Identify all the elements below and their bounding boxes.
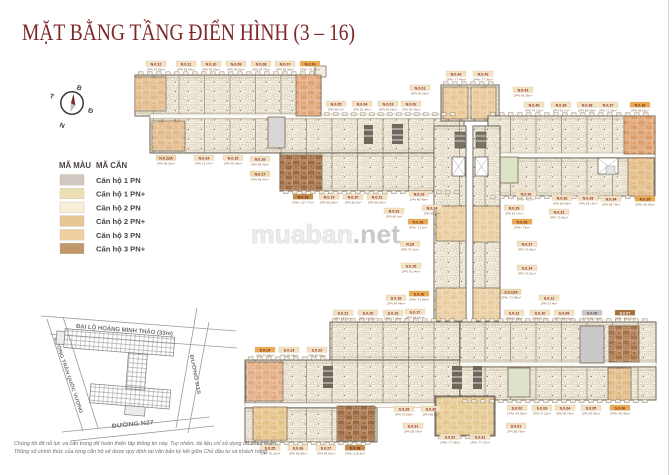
svg-text:S.0.12: S.0.12 xyxy=(509,311,520,315)
svg-text:S.0.29: S.0.29 xyxy=(399,407,410,411)
svg-text:2PN 60.3m²: 2PN 60.3m² xyxy=(386,215,403,219)
svg-text:N.0.11: N.0.11 xyxy=(181,62,192,66)
svg-text:S.0.19: S.0.19 xyxy=(388,311,399,315)
svg-text:N.0.12: N.0.12 xyxy=(151,62,162,66)
svg-text:2PN 70.21m²: 2PN 70.21m² xyxy=(518,272,536,276)
svg-text:2PN 64.44m²: 2PN 64.44m² xyxy=(387,302,405,306)
svg-text:2PN 59.43m²: 2PN 59.43m² xyxy=(202,68,220,72)
svg-text:N.0.03: N.0.03 xyxy=(383,102,394,106)
svg-text:2PN 74.13m²: 2PN 74.13m² xyxy=(525,109,543,113)
svg-text:S.0.20: S.0.20 xyxy=(363,311,374,315)
svg-text:2PN 58.7m²: 2PN 58.7m² xyxy=(328,108,345,112)
svg-text:N.0.26: N.0.26 xyxy=(305,62,316,66)
svg-text:S.0.22: S.0.22 xyxy=(312,348,323,352)
svg-text:1PN 45.49m²: 1PN 45.49m² xyxy=(410,198,428,202)
svg-text:S.0.18: S.0.18 xyxy=(391,296,402,300)
svg-text:2PN+ 73.1m²: 2PN+ 73.1m² xyxy=(409,226,427,230)
svg-text:N.0.20: N.0.20 xyxy=(348,195,359,199)
svg-text:N.0.19: N.0.19 xyxy=(324,195,335,199)
svg-text:2PN 59.34m²: 2PN 59.34m² xyxy=(353,108,371,112)
svg-text:N.0.40: N.0.40 xyxy=(529,103,540,107)
svg-text:2PN+ 79.33m²: 2PN+ 79.33m² xyxy=(300,68,320,72)
svg-text:S.0.09: S.0.09 xyxy=(559,311,570,315)
svg-text:2PN 69.92m²: 2PN 69.92m² xyxy=(582,412,600,416)
svg-text:2PN 59.34m²: 2PN 59.34m² xyxy=(177,68,195,72)
svg-text:N.0.04: N.0.04 xyxy=(357,102,369,106)
svg-text:S.0.01: S.0.01 xyxy=(511,424,522,428)
svg-text:S.0.23: S.0.23 xyxy=(284,348,295,352)
svg-text:1PN+ 45.7m²: 1PN+ 45.7m² xyxy=(517,198,535,202)
svg-text:2PN+ 127.77m²: 2PN+ 127.77m² xyxy=(292,201,314,205)
svg-text:muaban.net: muaban.net xyxy=(251,219,400,249)
svg-text:2PN+ 77.36m²: 2PN+ 77.36m² xyxy=(473,78,493,82)
svg-text:N.0.09: N.0.09 xyxy=(231,62,242,66)
svg-text:2PN 70.22m²: 2PN 70.22m² xyxy=(533,412,551,416)
svg-text:N.0.08: N.0.08 xyxy=(256,62,267,66)
svg-text:2PN 59.44m²: 2PN 59.44m² xyxy=(280,354,298,358)
svg-text:N.0.33: N.0.33 xyxy=(583,196,594,200)
svg-text:1PN 48.76m²: 1PN 48.76m² xyxy=(583,317,601,321)
svg-text:2PN 69.15m²: 2PN 69.15m² xyxy=(579,202,597,206)
svg-text:S.0.24: S.0.24 xyxy=(260,348,272,352)
svg-text:2PN 59.76m²: 2PN 59.76m² xyxy=(402,108,420,112)
svg-text:2PN 66.76m²: 2PN 66.76m² xyxy=(556,412,574,416)
svg-text:S.0.27: S.0.27 xyxy=(321,446,332,450)
svg-text:2PN 59.89m²: 2PN 59.89m² xyxy=(289,452,307,456)
svg-text:2PN 72.17m²: 2PN 72.17m² xyxy=(195,162,213,166)
svg-text:2PN 72.47m²: 2PN 72.47m² xyxy=(384,317,402,321)
svg-text:2PN 60.31m²: 2PN 60.31m² xyxy=(157,162,175,166)
svg-text:2PN 62.17m²: 2PN 62.17m² xyxy=(505,212,523,216)
svg-text:2PN 69.66m²: 2PN 69.66m² xyxy=(578,109,596,113)
svg-text:N.0.16: N.0.16 xyxy=(255,157,266,161)
svg-text:2PN 69.38m²: 2PN 69.38m² xyxy=(514,94,532,98)
svg-text:2PN+ 77.46m²: 2PN+ 77.46m² xyxy=(440,441,460,445)
svg-text:MÃ MÀU: MÃ MÀU xyxy=(59,161,91,170)
svg-text:2PN+ 86.23m²: 2PN+ 86.23m² xyxy=(615,317,635,321)
svg-text:N.0.38: N.0.38 xyxy=(582,103,593,107)
svg-text:2PN 60.66m²: 2PN 60.66m² xyxy=(505,317,523,321)
svg-text:N.0.39: N.0.39 xyxy=(556,103,567,107)
svg-text:N.0.37: N.0.37 xyxy=(603,103,614,107)
svg-text:2PN 69.91m²: 2PN 69.91m² xyxy=(317,452,335,456)
svg-text:S.0.06: S.0.06 xyxy=(615,406,626,410)
svg-text:2PN+ 77.46m²: 2PN+ 77.46m² xyxy=(446,78,466,82)
svg-text:2PN 69.42m²: 2PN 69.42m² xyxy=(251,163,269,167)
svg-text:N.0.27: N.0.27 xyxy=(522,242,533,246)
svg-text:2PN 49.26m²: 2PN 49.26m² xyxy=(379,108,397,112)
svg-text:N.0.12A: N.0.12A xyxy=(159,156,173,160)
svg-text:2PN 68.93m²: 2PN 68.93m² xyxy=(553,202,571,206)
svg-text:N.0.07: N.0.07 xyxy=(280,62,291,66)
svg-text:S.0.31: S.0.31 xyxy=(408,424,419,428)
svg-text:N.0.23: N.0.23 xyxy=(414,192,425,196)
svg-text:2PN 58.5m²: 2PN 58.5m² xyxy=(423,413,440,417)
svg-text:N.0.26: N.0.26 xyxy=(413,220,424,224)
svg-text:2PN 70.59m²: 2PN 70.59m² xyxy=(395,413,413,417)
svg-text:2PN 69.62m²: 2PN 69.62m² xyxy=(631,109,649,113)
svg-text:S.0.28: S.0.28 xyxy=(350,446,361,450)
svg-text:2PN 60.05m²: 2PN 60.05m² xyxy=(368,201,386,205)
svg-text:2PN 71.36m²: 2PN 71.36m² xyxy=(599,109,617,113)
svg-text:S.0.02: S.0.02 xyxy=(512,406,523,410)
svg-text:2PN 63.72m²: 2PN 63.72m² xyxy=(359,317,377,321)
svg-text:N.0.36: N.0.36 xyxy=(635,103,646,107)
svg-text:N.0.18: N.0.18 xyxy=(298,195,309,199)
svg-text:S.0.07: S.0.07 xyxy=(620,311,631,315)
svg-text:2PN 59.43m²: 2PN 59.43m² xyxy=(227,68,245,72)
svg-text:2PN 58.75m²: 2PN 58.75m² xyxy=(507,430,525,434)
svg-text:1PN 46.27m²: 1PN 46.27m² xyxy=(251,178,269,182)
svg-text:S.0.12A: S.0.12A xyxy=(504,290,518,294)
svg-text:2PN+ 77.37m²: 2PN+ 77.37m² xyxy=(470,441,490,445)
svg-text:Thông số chính thức của từng c: Thông số chính thức của từng căn hộ sẽ đ… xyxy=(14,448,268,455)
svg-text:2PN 69.45m²: 2PN 69.45m² xyxy=(555,317,573,321)
svg-text:Căn hộ 1 PN+: Căn hộ 1 PN+ xyxy=(96,190,146,199)
svg-text:N.0.31: N.0.31 xyxy=(554,210,565,214)
svg-text:2PN 57.85m²: 2PN 57.85m² xyxy=(147,68,165,72)
svg-text:N.0.28: N.0.28 xyxy=(517,220,528,224)
svg-text:S.0.26: S.0.26 xyxy=(293,446,304,450)
svg-text:Căn hộ 2 PN: Căn hộ 2 PN xyxy=(96,203,141,212)
svg-text:Căn hộ 3 PN+: Căn hộ 3 PN+ xyxy=(96,245,146,254)
svg-text:S.0.30: S.0.30 xyxy=(426,407,437,411)
svg-text:S.0.16: S.0.16 xyxy=(414,292,425,296)
svg-text:2PN+ 118.9m²: 2PN+ 118.9m² xyxy=(345,452,365,456)
svg-text:S.0.05: S.0.05 xyxy=(586,406,597,410)
svg-text:2PN 60.69m²: 2PN 60.69m² xyxy=(320,201,338,205)
svg-text:N.0.30: N.0.30 xyxy=(521,192,532,196)
svg-text:N.0.35: N.0.35 xyxy=(640,197,651,201)
svg-text:2PN 69.46m²: 2PN 69.46m² xyxy=(224,162,242,166)
svg-text:S.0.11: S.0.11 xyxy=(544,296,554,300)
svg-text:N.0.32: N.0.32 xyxy=(557,196,568,200)
svg-text:N.0.14: N.0.14 xyxy=(199,156,211,160)
svg-text:2PN+ 72.86m²: 2PN+ 72.86m² xyxy=(501,296,521,300)
svg-text:N.0.24: N.0.24 xyxy=(427,206,439,210)
svg-text:N.0.42: N.0.42 xyxy=(451,72,462,76)
svg-text:Chúng tôi đã nỗ lực và cẩn trọ: Chúng tôi đã nỗ lực và cẩn trọng để hoàn… xyxy=(14,440,277,447)
svg-text:2PN+ 73.86m²: 2PN+ 73.86m² xyxy=(409,298,429,302)
svg-text:S.0.21: S.0.21 xyxy=(338,311,349,315)
svg-text:2PN 70.11m²: 2PN 70.11m² xyxy=(401,248,419,252)
svg-text:Căn hộ 2 PN+: Căn hộ 2 PN+ xyxy=(96,217,146,226)
svg-text:2PN 57.84m²: 2PN 57.84m² xyxy=(256,354,274,358)
svg-text:N.0.15: N.0.15 xyxy=(228,156,239,160)
svg-text:N.0.22: N.0.22 xyxy=(389,209,400,213)
svg-text:S.0.17: S.0.17 xyxy=(410,310,421,314)
svg-text:N.0.17: N.0.17 xyxy=(255,172,266,176)
svg-text:Căn hộ 3 PN: Căn hộ 3 PN xyxy=(96,231,141,240)
svg-text:2PN 68.7m²: 2PN 68.7m² xyxy=(532,317,549,321)
svg-text:2PN 70.34m²: 2PN 70.34m² xyxy=(402,270,420,274)
svg-text:N.0.10: N.0.10 xyxy=(206,62,217,66)
svg-text:N.28: N.28 xyxy=(406,242,414,246)
svg-text:MẶT BẰNG TẦNG ĐIỂN HÌNH (3 – 1: MẶT BẰNG TẦNG ĐIỂN HÌNH (3 – 16) xyxy=(22,19,355,45)
svg-text:N.0.01: N.0.01 xyxy=(415,86,426,90)
svg-text:2PN 59.34m²: 2PN 59.34m² xyxy=(276,68,294,72)
svg-text:N.0.29: N.0.29 xyxy=(509,206,520,210)
svg-text:2PN 69.7m²: 2PN 69.7m² xyxy=(553,109,570,113)
svg-text:2PN 58.75m²: 2PN 58.75m² xyxy=(404,430,422,434)
svg-text:2PN 55.1m²: 2PN 55.1m² xyxy=(424,212,441,216)
svg-text:2PN 70.08m²: 2PN 70.08m² xyxy=(518,248,536,252)
svg-text:S.0.03: S.0.03 xyxy=(537,406,548,410)
svg-text:2PN 60.3m²: 2PN 60.3m² xyxy=(345,201,362,205)
svg-text:2PN 69.66m²: 2PN 69.66m² xyxy=(308,354,326,358)
svg-text:2PN 55.36m²: 2PN 55.36m² xyxy=(411,92,429,96)
svg-text:S.0.10: S.0.10 xyxy=(535,311,546,315)
svg-text:N.0.41: N.0.41 xyxy=(518,88,529,92)
svg-text:2PN+ 73m²: 2PN+ 73m² xyxy=(514,226,530,230)
svg-text:N.0.21: N.0.21 xyxy=(372,195,383,199)
svg-text:N.0.02: N.0.02 xyxy=(406,102,417,106)
svg-text:S.0.32: S.0.32 xyxy=(445,435,456,439)
svg-text:Căn hộ 1 PN: Căn hộ 1 PN xyxy=(96,176,141,185)
svg-text:N.0.05: N.0.05 xyxy=(331,102,342,106)
svg-text:2PN 68.75m²: 2PN 68.75m² xyxy=(602,203,620,207)
svg-text:2PN+ 90.36m²: 2PN+ 90.36m² xyxy=(610,412,630,416)
svg-text:N.0.34: N.0.34 xyxy=(606,197,618,201)
svg-text:2PN 73.26m²: 2PN 73.26m² xyxy=(334,317,352,321)
svg-text:2PN 72.63m²: 2PN 72.63m² xyxy=(550,216,568,220)
svg-text:S.0.14: S.0.14 xyxy=(522,266,534,270)
svg-text:2PN+ 82.53m²: 2PN+ 82.53m² xyxy=(635,203,655,207)
svg-text:S.0.31: S.0.31 xyxy=(475,435,486,439)
svg-text:N.0.42: N.0.42 xyxy=(478,72,489,76)
svg-text:S.0.04: S.0.04 xyxy=(560,406,572,410)
svg-text:2PN 59.74m²: 2PN 59.74m² xyxy=(252,68,270,72)
svg-text:MÃ CĂN: MÃ CĂN xyxy=(96,161,128,170)
svg-text:1PN+ 49.53m²: 1PN+ 49.53m² xyxy=(507,412,527,416)
svg-text:2PN 67.4m²: 2PN 67.4m² xyxy=(541,302,558,306)
svg-text:S.0.08: S.0.08 xyxy=(587,311,598,315)
svg-text:S.0.15: S.0.15 xyxy=(406,264,417,268)
svg-text:2PN 69.66m²: 2PN 69.66m² xyxy=(406,316,424,320)
